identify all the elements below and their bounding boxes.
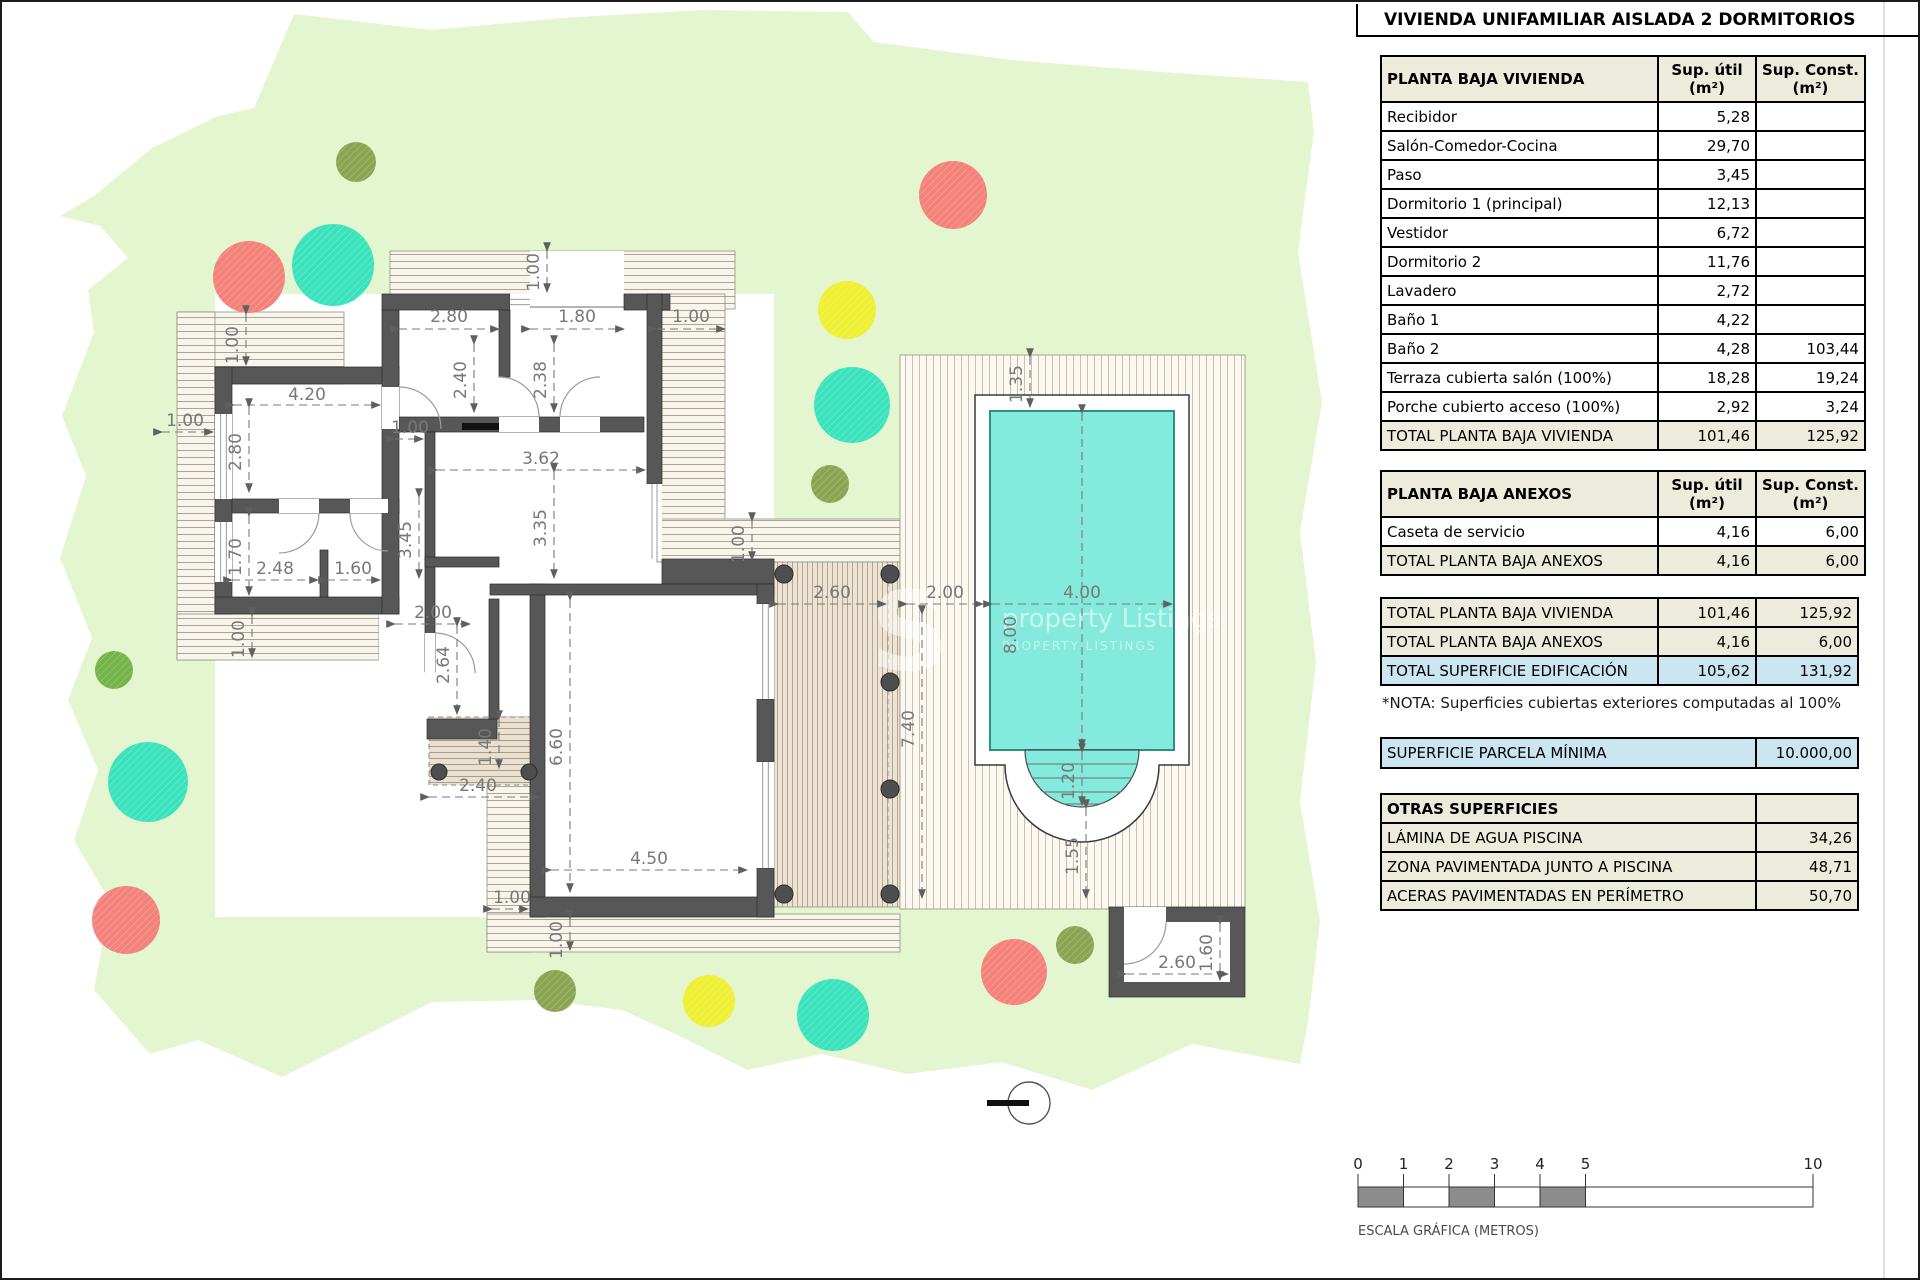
- scale-tick-label: 10: [1803, 1155, 1822, 1173]
- dimension-label: 7.40: [899, 710, 919, 748]
- dimension-label: 2.40: [459, 776, 497, 796]
- note-text: *NOTA: Superficies cubiertas exteriores …: [1382, 694, 1841, 712]
- dimension-label: 2.64: [434, 646, 454, 684]
- table-row: ZONA PAVIMENTADA JUNTO A PISCINA48,71: [1381, 852, 1858, 881]
- parcela-label: SUPERFICIE PARCELA MÍNIMA: [1381, 738, 1756, 768]
- table-row: Porche cubierto acceso (100%)2,923,24: [1381, 392, 1865, 421]
- dimension-label: 2.38: [531, 361, 551, 399]
- dimension-label: 4.50: [630, 849, 668, 869]
- dimension-label: 1.00: [547, 921, 567, 959]
- dimension-label: 1.00: [223, 326, 243, 364]
- dimension-label: 3.62: [522, 449, 560, 469]
- table-row: TOTAL PLANTA BAJA ANEXOS4,166,00: [1381, 627, 1858, 656]
- scale-tick-label: 1: [1399, 1155, 1409, 1173]
- dimension-label: 1.00: [229, 620, 249, 658]
- dimension-label: 1.70: [226, 538, 246, 576]
- dimension-label: 1.00: [729, 525, 749, 563]
- table-row: Baño 14,22: [1381, 305, 1865, 334]
- porch-post: [881, 780, 899, 798]
- scale-tick-label: 0: [1353, 1155, 1363, 1173]
- dimension-label: 2.60: [1158, 953, 1196, 973]
- dimension-label: 2.80: [226, 433, 246, 471]
- table-header-anexos: PLANTA BAJA ANEXOS: [1381, 471, 1658, 517]
- table-row: TOTAL PLANTA BAJA ANEXOS4,166,00: [1381, 546, 1865, 575]
- area-table-totales: TOTAL PLANTA BAJA VIVIENDA101,46125,92TO…: [1380, 597, 1859, 686]
- dimension-label: 6.60: [547, 728, 567, 766]
- dimension-label: 4.20: [288, 385, 326, 405]
- empty-cell: [1756, 794, 1858, 823]
- dimension-label: 2.00: [414, 603, 452, 623]
- area-table-otras-superficies: OTRAS SUPERFICIES LÁMINA DE AGUA PISCINA…: [1380, 793, 1859, 911]
- dimension-label: 1.60: [334, 559, 372, 579]
- scale-bar-caption: ESCALA GRÁFICA (METROS): [1358, 1223, 1539, 1239]
- dimension-label: 1.00: [391, 418, 429, 438]
- dimension-label: 2.80: [430, 307, 468, 327]
- plan-sheet: Sproperty ListingsPROPERTY LISTINGS 2.80…: [0, 0, 1920, 1280]
- dimension-label: 1.00: [493, 888, 531, 908]
- dimension-label: 2.40: [451, 361, 471, 399]
- dimension-label: 1.40: [476, 728, 496, 766]
- scale-tick-label: 3: [1490, 1155, 1500, 1173]
- area-table-planta-baja-anexos: PLANTA BAJA ANEXOS Sup. útil(m²) Sup. Co…: [1380, 470, 1866, 576]
- table-row: Paso3,45: [1381, 160, 1865, 189]
- dimension-label: 2.48: [256, 559, 294, 579]
- drawing-title: VIVIENDA UNIFAMILIAR AISLADA 2 DORMITORI…: [1358, 10, 1855, 30]
- porch-post: [881, 885, 899, 903]
- table-row: TOTAL PLANTA BAJA VIVIENDA101,46125,92: [1381, 421, 1865, 450]
- dimension-label: 1.35: [1007, 365, 1027, 403]
- svg-text:PROPERTY LISTINGS: PROPERTY LISTINGS: [1002, 639, 1156, 653]
- porch-post: [431, 764, 447, 780]
- dimension-label: 1.00: [672, 307, 710, 327]
- table-row: Baño 24,28103,44: [1381, 334, 1865, 363]
- dimension-label: 1.55: [1063, 837, 1083, 875]
- table-row: ACERAS PAVIMENTADAS EN PERÍMETRO50,70: [1381, 881, 1858, 910]
- table-row: Dormitorio 1 (principal)12,13: [1381, 189, 1865, 218]
- col-header-sup-const: Sup. Const.(m²): [1756, 471, 1865, 517]
- table-row: Vestidor6,72: [1381, 218, 1865, 247]
- dimension-label: 1.60: [1197, 934, 1217, 972]
- table-row: Dormitorio 211,76: [1381, 247, 1865, 276]
- table-row: Salón-Comedor-Cocina29,70: [1381, 131, 1865, 160]
- table-superficie-parcela: SUPERFICIE PARCELA MÍNIMA 10.000,00: [1380, 737, 1859, 769]
- dimension-label: 2.00: [926, 583, 964, 603]
- dimension-label: 1.80: [558, 307, 596, 327]
- area-table-planta-baja-vivienda: PLANTA BAJA VIVIENDA Sup. útil(m²) Sup. …: [1380, 55, 1866, 451]
- scale-tick-label: 5: [1581, 1155, 1591, 1173]
- porch-post: [521, 764, 537, 780]
- svg-text:property Listings: property Listings: [1002, 604, 1221, 634]
- table-row: TOTAL PLANTA BAJA VIVIENDA101,46125,92: [1381, 598, 1858, 627]
- porch-post: [775, 885, 793, 903]
- scale-tick-label: 4: [1535, 1155, 1545, 1173]
- parcela-value: 10.000,00: [1756, 738, 1858, 768]
- dimension-label: 3.45: [396, 521, 416, 559]
- drawing-title-block: VIVIENDA UNIFAMILIAR AISLADA 2 DORMITORI…: [1356, 4, 1920, 37]
- porch-post: [775, 565, 793, 583]
- table-row: Recibidor5,28: [1381, 102, 1865, 131]
- dimension-label: 8.00: [1001, 616, 1021, 654]
- scale-tick-label: 2: [1444, 1155, 1454, 1173]
- table-row: LÁMINA DE AGUA PISCINA34,26: [1381, 823, 1858, 852]
- dimension-label: 1.00: [524, 253, 544, 291]
- table-row: Terraza cubierta salón (100%)18,2819,24: [1381, 363, 1865, 392]
- table-row: Lavadero2,72: [1381, 276, 1865, 305]
- table-row: Caseta de servicio4,166,00: [1381, 517, 1865, 546]
- dimension-label: 1.20: [1059, 762, 1079, 800]
- table-header-vivienda: PLANTA BAJA VIVIENDA: [1381, 56, 1658, 102]
- dimension-label: 1.00: [166, 411, 204, 431]
- col-header-sup-util: Sup. útil(m²): [1658, 471, 1756, 517]
- table-row: TOTAL SUPERFICIE EDIFICACIÓN105,62131,92: [1381, 656, 1858, 685]
- dimension-label: 3.35: [531, 509, 551, 547]
- col-header-sup-const: Sup. Const.(m²): [1756, 56, 1865, 102]
- col-header-sup-util: Sup. útil(m²): [1658, 56, 1756, 102]
- dimension-label: 2.60: [813, 583, 851, 603]
- table-header-otras: OTRAS SUPERFICIES: [1381, 794, 1756, 823]
